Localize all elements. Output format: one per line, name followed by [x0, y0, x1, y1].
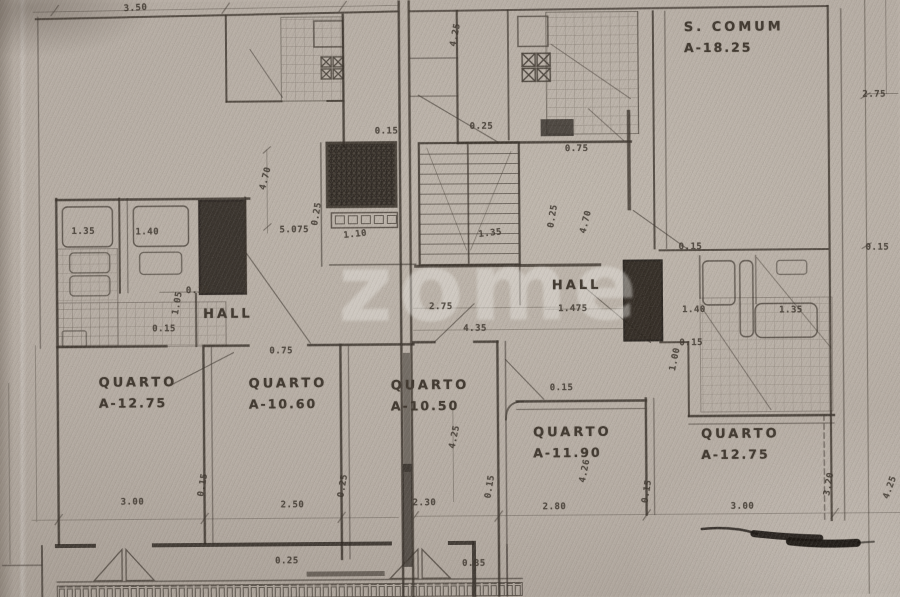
room-name: S. COMUM [684, 17, 784, 38]
dimension-label: 3.00 [731, 502, 755, 512]
scanned-floorplan-page: zome S. COMUMA-18.25HALLHALLQUARTOA-12.7… [0, 0, 900, 597]
dimension-label: 1.40 [135, 227, 159, 237]
room-area: A-11.90 [533, 443, 612, 463]
dimension-label: 5.075 [279, 225, 309, 235]
room-name: HALL [203, 305, 253, 326]
room-name: QUARTO [249, 374, 328, 395]
dimension-label: 0.15 [186, 286, 210, 296]
dimension-label: 1.475 [558, 304, 588, 314]
room-label: HALL [552, 276, 602, 297]
dimension-label: 3.50 [123, 3, 147, 14]
room-name: QUARTO [99, 373, 178, 394]
room-area: A-12.75 [99, 393, 178, 413]
dimension-label: 4.35 [463, 324, 487, 334]
room-label: QUARTOA-10.60 [249, 374, 328, 414]
dimension-label: 0.25 [275, 556, 299, 566]
dimension-label: 0.75 [269, 346, 293, 356]
dimension-label: 0.15 [550, 383, 574, 393]
room-label: QUARTOA-10.50 [391, 376, 470, 416]
room-label: QUARTOA-12.75 [701, 424, 780, 464]
room-name: QUARTO [701, 424, 780, 445]
dimension-label: 2.80 [543, 502, 567, 512]
dimension-label: 0.25 [470, 122, 494, 132]
room-label: QUARTOA-12.75 [99, 373, 178, 413]
room-label: QUARTOA-11.90 [533, 423, 612, 463]
dimension-label: 0.15 [152, 324, 176, 334]
room-name: QUARTO [391, 376, 470, 397]
dimension-label: 0.15 [375, 126, 399, 136]
room-area: A-10.50 [391, 396, 470, 416]
dimension-label: 0.15 [679, 338, 703, 348]
room-name: HALL [552, 276, 602, 297]
floorplan: zome S. COMUMA-18.25HALLHALLQUARTOA-12.7… [0, 0, 900, 597]
room-label: S. COMUMA-18.25 [684, 17, 784, 57]
dimension-label: 3.00 [121, 497, 145, 507]
dimension-label: 2.50 [281, 500, 305, 510]
dimension-label: 1.35 [779, 305, 803, 315]
dimension-label: 0.85 [462, 559, 486, 569]
dimension-label: 2.30 [413, 498, 437, 508]
dimension-label: 1.40 [682, 305, 706, 315]
room-area: A-10.60 [249, 394, 328, 414]
room-area: A-18.25 [684, 38, 784, 58]
dimension-label: 1.35 [71, 227, 95, 237]
dimension-label: 0.15 [866, 243, 890, 253]
dimension-label: 2.75 [429, 302, 453, 312]
room-label: HALL [203, 305, 253, 326]
room-name: QUARTO [533, 423, 612, 444]
dimension-label: 0.15 [679, 242, 703, 252]
dimension-label: 2.75 [862, 90, 886, 100]
dimension-label: 0.75 [565, 144, 589, 154]
room-area: A-12.75 [701, 445, 780, 465]
